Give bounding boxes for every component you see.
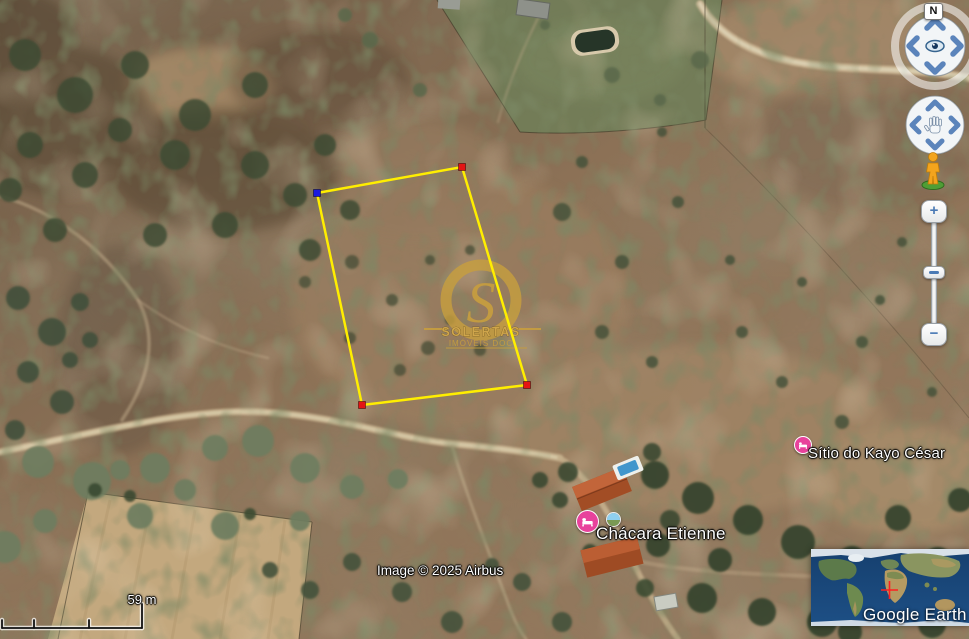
zoom-slider[interactable]: + − <box>920 200 946 345</box>
imagery-attribution: Image © 2025 Airbus <box>377 563 503 578</box>
bed-icon <box>798 440 808 450</box>
parcel-corner-handle-red[interactable] <box>359 402 366 409</box>
zoom-out-button[interactable]: − <box>921 323 947 346</box>
parcel-corner-handle-red[interactable] <box>524 382 531 389</box>
overview-map[interactable]: Google Earth <box>811 549 969 626</box>
zoom-slider-handle[interactable] <box>923 266 945 279</box>
place-label-sitio-do-kayo-cesar[interactable]: Sítio do Kayo César <box>808 445 945 462</box>
scale-bar: 59 m <box>0 590 170 634</box>
compass-north-button[interactable]: N <box>924 3 943 20</box>
parcel-corner-handle-blue[interactable] <box>314 190 321 197</box>
parcel-corner-handle-red[interactable] <box>459 164 466 171</box>
zoom-in-button[interactable]: + <box>921 200 947 223</box>
google-earth-logo: Google Earth <box>863 605 967 625</box>
bare-soil-texture <box>0 0 969 639</box>
bed-icon <box>581 515 594 528</box>
satellite-map-canvas[interactable] <box>0 0 969 639</box>
slider-dash-icon <box>929 271 939 274</box>
place-label-chacara-etienne[interactable]: Chácara Etienne <box>596 524 726 544</box>
pegman-icon <box>927 153 940 185</box>
pegman-street-view[interactable] <box>917 149 949 191</box>
eye-icon <box>926 41 944 52</box>
google-earth-viewport[interactable]: S SOLERTAS IMÓVEIS DOC Sítio do Kayo Cés… <box>0 0 969 639</box>
scale-label: 59 m <box>118 592 166 607</box>
